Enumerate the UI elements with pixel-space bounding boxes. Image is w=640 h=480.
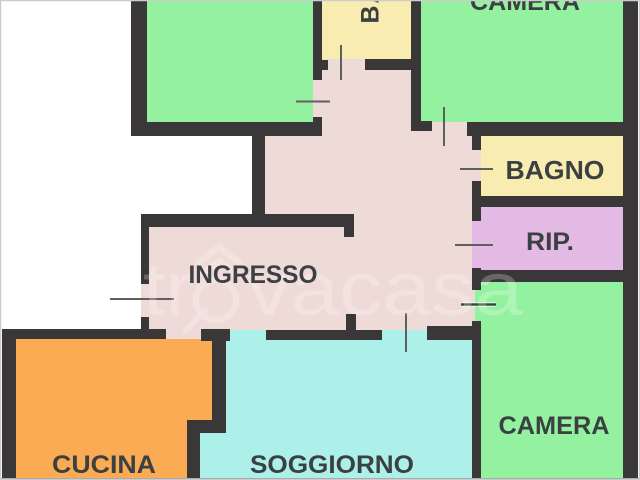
svg-text:CAMERA: CAMERA	[470, 0, 580, 16]
svg-text:CUCINA: CUCINA	[52, 451, 156, 479]
svg-text:tr: tr	[143, 247, 193, 332]
svg-text:BAGNO: BAGNO	[357, 0, 385, 24]
svg-text:RIP.: RIP.	[526, 228, 574, 256]
svg-text:vacasa: vacasa	[247, 247, 524, 332]
svg-text:SOGGIORNO: SOGGIORNO	[250, 451, 414, 479]
svg-text:BAGNO: BAGNO	[506, 155, 605, 185]
svg-text:INGRESSO: INGRESSO	[189, 261, 318, 289]
svg-text:CAMERA: CAMERA	[499, 412, 610, 440]
